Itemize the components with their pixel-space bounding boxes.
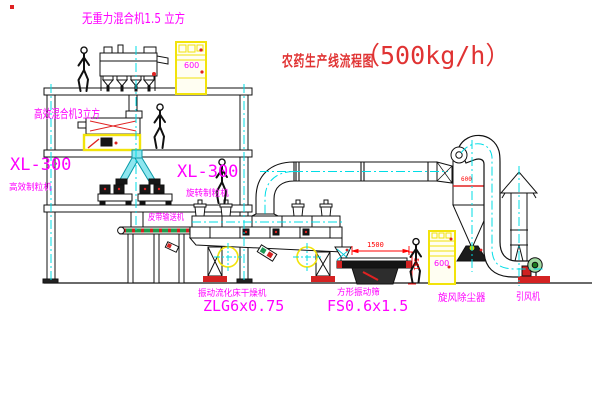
- accent-dot: [10, 5, 14, 9]
- belt-conveyor: [118, 227, 198, 283]
- dryer-exhaust-duct: [248, 162, 437, 217]
- label-fan: 引风机: [516, 293, 540, 303]
- label-gravity-mixer: 无重力混合机1.5 立方: [82, 13, 185, 26]
- cad-flow-diagram: 农药生产线流程图 （500kg/h） 无重力混合机1.5 立方 高效混合机3立方…: [0, 0, 600, 403]
- label-granulator-left-model: XL-300: [10, 157, 71, 174]
- cabinet2-mark: 600: [434, 260, 449, 268]
- cabinet1-mark: 600: [184, 62, 199, 70]
- vibrating-sieve: [335, 247, 411, 284]
- control-cabinet-2: [429, 231, 455, 284]
- label-dryer-model: ZLG6x0.75: [203, 299, 284, 314]
- label-granulator-center-model: XL-300: [177, 164, 238, 181]
- dim-cyclone-marking: 600: [461, 177, 472, 183]
- diagram-title-capacity: （500kg/h）: [355, 43, 510, 68]
- dim-sieve-length: 1500: [367, 242, 384, 249]
- dim-sieve-height: 541: [412, 258, 419, 271]
- gravity-free-mixer: [100, 45, 168, 111]
- label-belt-conveyor: 皮带输送机: [148, 214, 184, 223]
- label-sieve-model: FS0.6x1.5: [327, 299, 408, 314]
- label-granulator-center-name: 旋转制粒机: [186, 190, 229, 199]
- label-granulator-left-name: 高效制粒机: [9, 184, 52, 193]
- person-floor2: [155, 104, 166, 148]
- label-high-eff-mixer: 高效混合机3立方: [34, 108, 100, 120]
- person-roof: [79, 47, 90, 91]
- label-cyclone: 旋风除尘器: [438, 294, 486, 304]
